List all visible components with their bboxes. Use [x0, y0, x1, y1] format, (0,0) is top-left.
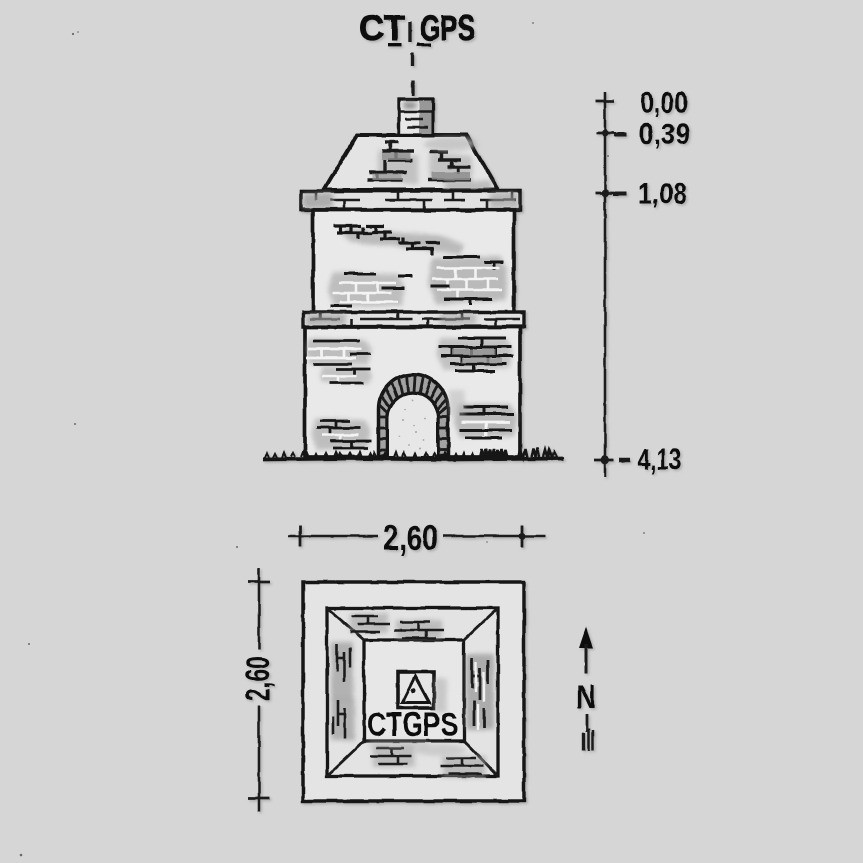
svg-text:4,13: 4,13	[638, 444, 682, 477]
svg-text:0,39: 0,39	[639, 118, 690, 151]
svg-text:2,60: 2,60	[239, 656, 276, 701]
svg-text:GPS: GPS	[420, 9, 475, 48]
svg-text:2,60: 2,60	[383, 519, 438, 558]
svg-text:N: N	[576, 679, 596, 717]
svg-text:0,00: 0,00	[640, 87, 688, 120]
svg-text:CTGPS: CTGPS	[367, 706, 458, 744]
svg-text:CT: CT	[359, 9, 405, 48]
svg-text:1,08: 1,08	[638, 178, 687, 211]
